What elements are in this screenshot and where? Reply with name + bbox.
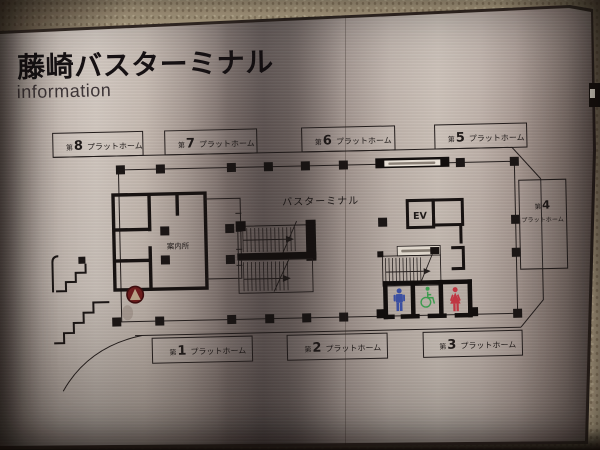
metal-seam <box>345 10 346 445</box>
direction-arrow <box>386 271 424 272</box>
info-office-label: 案内所 <box>167 240 190 250</box>
floor-plan: 第8プラットホーム 第7プラットホーム 第6プラットホーム 第5プラットホーム … <box>0 0 600 450</box>
photo-of-information-board: 藤崎バスターミナル information <box>0 0 600 450</box>
info-office-building <box>113 193 207 290</box>
central-stairs <box>236 220 318 294</box>
info-office-canopy <box>205 198 243 279</box>
female-restroom-icon <box>450 287 461 311</box>
outdoor-steps <box>52 255 110 343</box>
terminal-area-label: バスターミナル <box>282 195 359 209</box>
accessible-restroom-icon <box>421 287 435 308</box>
platform-box-4 <box>519 179 568 269</box>
adjacent-sign-fragment <box>589 83 600 107</box>
small-wall-sign <box>375 157 449 169</box>
elevator-label: EV <box>413 211 428 222</box>
platform-label-4-word: プラットホーム <box>521 216 564 224</box>
stair-treads <box>385 257 421 284</box>
male-restroom-icon <box>393 288 405 311</box>
direction-arrow <box>244 278 283 279</box>
metal-sign-panel: 藤崎バスターミナル information <box>0 0 600 450</box>
direction-arrow <box>243 239 286 240</box>
driveway-curve <box>62 335 143 391</box>
steps-pillar <box>78 257 85 264</box>
